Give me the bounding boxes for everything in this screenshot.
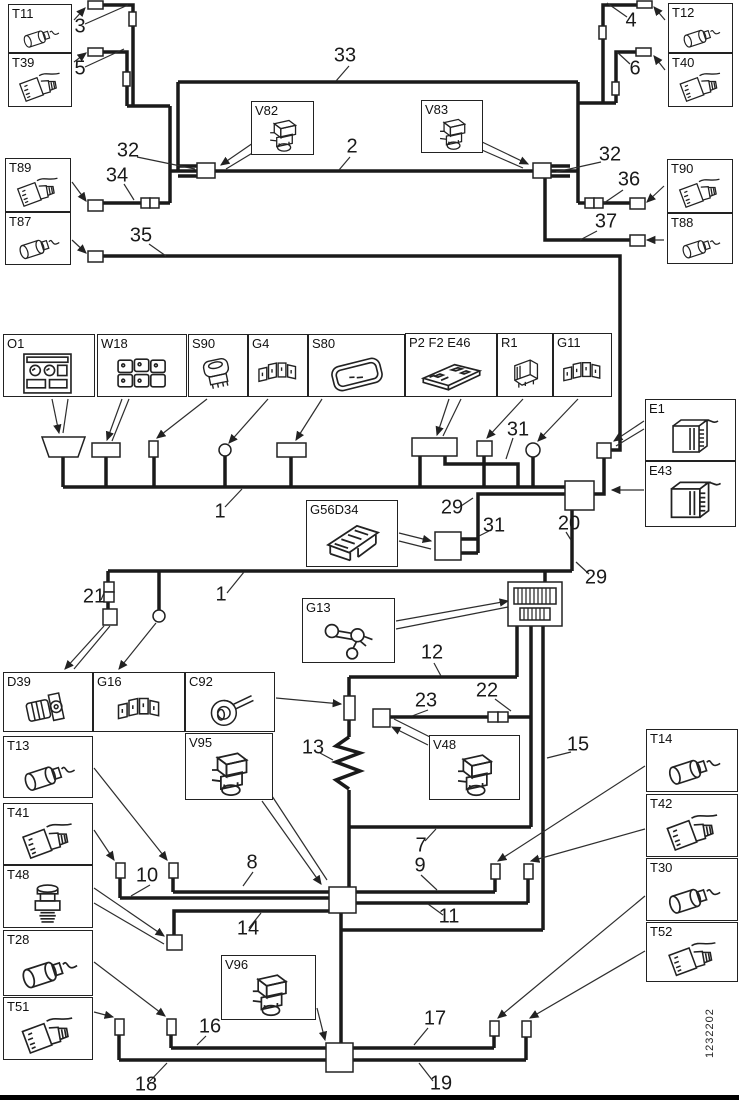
component-box-t13: T13 [3, 736, 93, 798]
component-box-t41: T41 [3, 803, 93, 865]
component-label: W18 [98, 335, 186, 351]
cylindrical-sensor-icon [652, 746, 733, 791]
component-label: T48 [4, 866, 92, 882]
inline-connector [599, 26, 606, 39]
component-label: T13 [4, 737, 92, 753]
inline-connector [585, 198, 594, 208]
callout-35: 35 [130, 225, 152, 248]
component-box-e43: E43 [645, 461, 736, 527]
connector-block-icon [99, 689, 180, 731]
cylindrical-sensor-icon [8, 753, 87, 797]
component-label: S80 [309, 335, 404, 351]
component-label: T28 [4, 931, 92, 947]
callout-4: 4 [625, 10, 636, 33]
g56d34-connector [435, 532, 461, 560]
control-plate-icon [314, 351, 400, 396]
page-bottom-edge [0, 1095, 739, 1100]
component-label: G13 [303, 599, 394, 615]
plug-connector-icon [652, 939, 733, 981]
component-box-t39: T39 [8, 53, 72, 107]
component-box-o1: O1 [3, 334, 95, 397]
terminal-connector [637, 1, 652, 8]
component-box-e1: E1 [645, 399, 736, 461]
g16-connector [153, 610, 165, 622]
wiring-diagram-page: T11 T39 T12 T40 T89 T87 T90 T88 V82 V83 … [0, 0, 739, 1100]
inline-connector [488, 712, 498, 722]
component-stems [63, 456, 533, 487]
cylindrical-sensor-icon [8, 947, 87, 995]
panel-connector [277, 443, 306, 457]
component-label: T11 [9, 5, 71, 21]
junction-connector [197, 163, 215, 178]
component-label: V83 [422, 101, 482, 117]
component-box-v96: V96 [221, 955, 316, 1020]
control-unit-icon [650, 478, 730, 526]
terminal-connector [88, 200, 103, 211]
component-label: T52 [647, 923, 737, 939]
inline-connector [104, 582, 114, 592]
component-box-t87: T87 [5, 212, 71, 265]
component-label: O1 [4, 335, 94, 351]
cylindrical-sensor-icon [652, 875, 733, 920]
inline-connector [491, 864, 500, 879]
component-box-v95: V95 [185, 733, 273, 800]
v48-connector [373, 709, 390, 727]
component-box-t42: T42 [646, 794, 738, 857]
callout-31-top: 31 [507, 419, 529, 442]
instrument-cluster-icon [9, 351, 90, 396]
callout-23: 23 [415, 690, 437, 713]
callout-22: 22 [476, 680, 498, 703]
component-box-t11: T11 [8, 4, 72, 53]
junction-connector [533, 163, 551, 178]
callout-16: 16 [199, 1016, 221, 1039]
inline-connector [522, 1021, 531, 1037]
component-box-t48: T48 [3, 865, 93, 928]
component-label: T42 [647, 795, 737, 811]
callout-19: 19 [430, 1073, 452, 1096]
part-number: 1232202 [704, 1008, 716, 1058]
callout-12: 12 [421, 642, 443, 665]
spiral-cable [336, 737, 360, 789]
component-label: C92 [186, 673, 274, 689]
plug-connector-icon [12, 70, 68, 106]
component-label: E43 [646, 462, 735, 478]
panel-connector [92, 443, 120, 457]
e1-drop [594, 458, 604, 494]
callout-29-mid: 29 [585, 567, 607, 590]
plug-connector-icon [652, 811, 733, 856]
callout-31-mid: 31 [483, 515, 505, 538]
callout-21: 21 [83, 586, 105, 609]
wire-16 [171, 1035, 326, 1048]
component-label: E1 [646, 400, 735, 416]
component-label: T41 [4, 804, 92, 820]
component-label: G11 [554, 334, 611, 350]
inline-connector [129, 12, 136, 26]
component-box-g13: G13 [302, 598, 395, 663]
component-box-t14: T14 [646, 729, 738, 792]
pressure-sensor-icon [8, 882, 87, 927]
wire-29-upper [461, 494, 565, 553]
solenoid-valve-icon [255, 118, 310, 154]
component-box-v83: V83 [421, 100, 483, 153]
terminal-connector [636, 48, 651, 56]
ring-connector [526, 443, 540, 457]
callout-5: 5 [74, 58, 85, 81]
callout-13: 13 [302, 737, 324, 760]
trident-left [170, 166, 197, 176]
terminal-connector [630, 198, 645, 209]
inline-connector [524, 864, 533, 879]
wire-17 [353, 1036, 494, 1048]
component-box-t90: T90 [667, 159, 733, 213]
component-label: V48 [430, 736, 519, 752]
component-box-w18: W18 [97, 334, 187, 397]
plug-connector-icon [671, 176, 729, 212]
callout-8: 8 [246, 852, 257, 875]
plug-connector-icon [8, 820, 87, 864]
horn-icon [190, 689, 269, 731]
component-box-t88: T88 [667, 213, 733, 264]
terminal-connector [88, 251, 103, 262]
cylindrical-sensor-icon [12, 21, 68, 52]
switch-pack-icon [102, 351, 181, 396]
connector-block-icon [252, 351, 304, 396]
inline-connector [594, 198, 603, 208]
control-unit-icon [650, 416, 730, 460]
inline-connector [104, 592, 114, 602]
callout-20: 20 [558, 513, 580, 536]
cylindrical-sensor-icon [672, 20, 729, 52]
callout-17: 17 [424, 1008, 446, 1031]
relay-icon [501, 350, 550, 396]
component-box-c92: C92 [185, 672, 275, 732]
frame-bracket-icon [312, 517, 393, 566]
component-label: R1 [498, 334, 552, 350]
component-box-t40: T40 [668, 53, 733, 107]
inline-connector [150, 198, 159, 208]
callout-32-left: 32 [117, 140, 139, 163]
inline-connector [344, 696, 355, 720]
component-label: G16 [94, 673, 184, 689]
callout-34: 34 [106, 165, 128, 188]
plug-connector-icon [8, 1014, 87, 1059]
callout-29-top: 29 [441, 497, 463, 520]
component-label: T40 [669, 54, 732, 70]
terminal-connector [630, 235, 645, 246]
callout-9: 9 [414, 855, 425, 878]
junction-box [326, 1043, 353, 1072]
inline-connector [490, 1021, 499, 1036]
component-label: T14 [647, 730, 737, 746]
inline-connector [116, 863, 125, 878]
callout-37: 37 [595, 211, 617, 234]
component-box-r1: R1 [497, 333, 553, 397]
ring-connector [219, 444, 231, 456]
wire-31-path [445, 456, 518, 487]
panel-connector [477, 441, 492, 456]
wire-8 [173, 878, 329, 892]
component-label: T51 [4, 998, 92, 1014]
component-box-t28: T28 [3, 930, 93, 996]
component-label: G56D34 [307, 501, 397, 517]
component-label: T39 [9, 54, 71, 70]
plug-connector-icon [9, 175, 67, 211]
component-box-t51: T51 [3, 997, 93, 1060]
component-label: P2 F2 E46 [406, 334, 496, 350]
component-box-p2f2e46: P2 F2 E46 [405, 333, 497, 397]
solenoid-valve-icon [227, 972, 311, 1019]
e43-connector [565, 481, 594, 510]
component-box-s80: S80 [308, 334, 405, 397]
component-label: T87 [6, 213, 70, 229]
inline-connector [167, 1019, 176, 1035]
component-label: S90 [189, 335, 247, 351]
component-box-d39: D39 [3, 672, 93, 732]
inline-connector [169, 863, 178, 878]
component-label: D39 [4, 673, 92, 689]
motor-icon [8, 689, 87, 731]
callout-1-bottom: 1 [215, 584, 226, 607]
callout-6: 6 [629, 58, 640, 81]
callout-11: 11 [439, 906, 460, 929]
rocker-switch-icon [192, 351, 244, 396]
plug-connector-icon [672, 70, 729, 106]
component-box-g16: G16 [93, 672, 185, 732]
callout-3: 3 [74, 16, 85, 39]
e1-connector [597, 443, 611, 458]
component-box-t30: T30 [646, 858, 738, 921]
inline-connector [141, 198, 150, 208]
component-label: V95 [186, 734, 272, 750]
component-label: T89 [6, 159, 70, 175]
callout-15: 15 [567, 734, 589, 757]
component-label: T30 [647, 859, 737, 875]
component-box-t89: T89 [5, 158, 71, 212]
component-label: V96 [222, 956, 315, 972]
component-label: G4 [249, 335, 307, 351]
component-box-v48: V48 [429, 735, 520, 800]
callout-36: 36 [618, 169, 640, 192]
inline-connector [612, 82, 619, 95]
terminal-connector [88, 48, 103, 56]
component-label: T90 [668, 160, 732, 176]
junction-box [329, 887, 356, 913]
component-box-t12: T12 [668, 3, 733, 53]
callout-18: 18 [135, 1074, 157, 1097]
component-label: T88 [668, 214, 732, 230]
callout-33: 33 [334, 45, 356, 68]
component-label: V82 [252, 102, 313, 118]
solenoid-valve-icon [434, 752, 514, 799]
t48-connector [167, 935, 182, 950]
component-box-v82: V82 [251, 101, 314, 155]
solenoid-valve-icon [190, 750, 267, 799]
component-box-g4: G4 [248, 334, 308, 397]
panel-connector [42, 437, 85, 457]
inline-connector [123, 72, 130, 86]
component-box-s90: S90 [188, 334, 248, 397]
circuit-board-icon [411, 350, 492, 396]
inline-connector [498, 712, 508, 722]
connector-block-icon [557, 350, 608, 396]
wire-9 [356, 879, 495, 892]
solenoid-valve-icon [425, 117, 479, 152]
bracket-icon [308, 615, 390, 662]
component-label: T12 [669, 4, 732, 20]
d39-connector [103, 609, 117, 625]
cylindrical-sensor-icon [9, 229, 67, 264]
terminal-connector [88, 1, 103, 9]
component-box-t52: T52 [646, 922, 738, 982]
callout-14: 14 [237, 918, 259, 941]
cylindrical-sensor-icon [671, 230, 729, 263]
inline-connector [115, 1019, 124, 1035]
callout-2: 2 [346, 136, 357, 159]
panel-connector [149, 441, 158, 457]
callout-1-top: 1 [214, 501, 225, 524]
component-box-g11: G11 [553, 333, 612, 397]
callout-10: 10 [136, 865, 158, 888]
component-box-g56d34: G56D34 [306, 500, 398, 567]
panel-connector [412, 438, 457, 456]
callout-32-right: 32 [599, 144, 621, 167]
